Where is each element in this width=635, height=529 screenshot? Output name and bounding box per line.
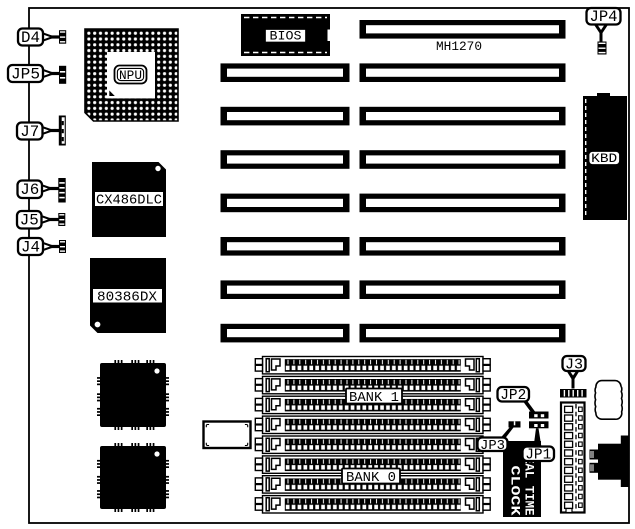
svg-text:NPU: NPU [119,68,142,83]
svg-text:JP4: JP4 [590,8,618,26]
svg-text:D4: D4 [21,29,40,47]
svg-text:CLOCK: CLOCK [508,466,523,516]
svg-text:MH1270: MH1270 [436,39,482,54]
svg-text:BANK 0: BANK 0 [346,471,396,486]
svg-text:J7: J7 [20,123,39,141]
svg-text:KBD: KBD [591,151,617,166]
svg-text:80386DX: 80386DX [97,291,157,306]
svg-text:J5: J5 [20,212,39,230]
svg-text:JP3: JP3 [480,438,505,454]
svg-text:JP1: JP1 [525,448,551,464]
svg-text:J3: J3 [565,357,583,373]
svg-text:CX486DLC: CX486DLC [96,194,162,209]
svg-text:JP2: JP2 [500,388,526,404]
svg-text:J6: J6 [20,181,39,199]
svg-text:J4: J4 [21,238,40,256]
svg-text:BANK 1: BANK 1 [349,391,399,406]
svg-text:BIOS: BIOS [270,30,302,44]
svg-text:JP5: JP5 [11,65,40,83]
